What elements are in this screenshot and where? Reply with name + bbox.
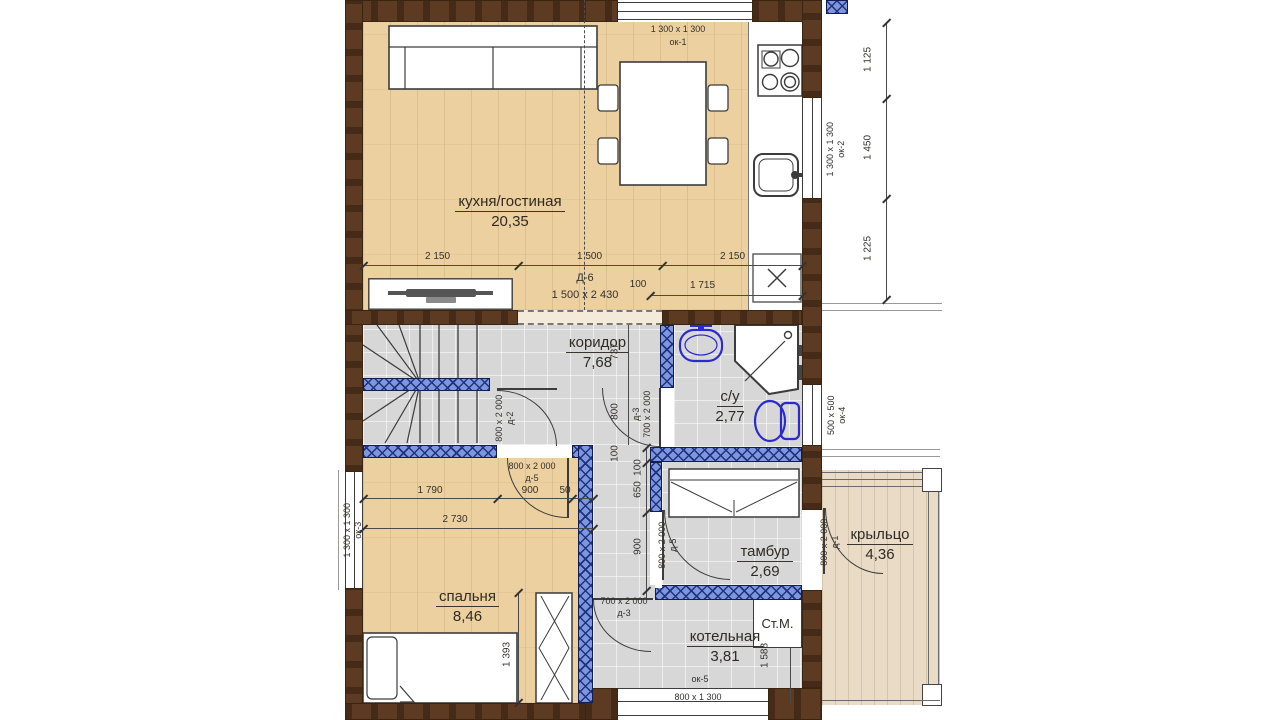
door-d3-boiler-code: д-3: [594, 608, 654, 619]
shower-icon: [733, 323, 805, 398]
window-ok5-code: ок-5: [670, 674, 730, 685]
dim-line-bedroom-2: [363, 528, 593, 529]
dim-bedroom-2730: 2 730: [405, 514, 505, 525]
door-code: д-2: [505, 383, 516, 453]
dim-bedroom-50: 50: [551, 485, 579, 496]
window-code: ок-4: [837, 383, 848, 447]
room-name: котельная: [687, 628, 764, 647]
room-label-corridor: коридор 7,68: [550, 334, 645, 371]
porch-post-bottom: [922, 684, 942, 706]
door-d3-boiler-size: 700 х 2 000: [574, 596, 674, 607]
wall-kitchen-bath: [662, 310, 802, 325]
door-code: д-1: [830, 507, 841, 577]
partition-corridor-bedroom: [363, 445, 497, 458]
door-code: д-3: [631, 379, 642, 449]
window-code: ок-2: [836, 109, 847, 189]
dim-top-right: 2 150: [685, 251, 780, 262]
opening-d6: [518, 310, 662, 325]
window-ok4: [802, 385, 822, 445]
room-label-porch: крыльцо 4,36: [835, 526, 925, 563]
dim-tambour-650: 650: [633, 460, 644, 520]
room-area: 2,69: [720, 563, 810, 580]
door-size: 700 х 2 000: [642, 379, 653, 449]
dim-bedroom-1393: 1 393: [502, 625, 513, 685]
porch-bottom-line: [822, 700, 940, 701]
dim-corridor-100: 100: [610, 424, 621, 484]
window-ok1: [618, 2, 752, 20]
dim-top-mid: 1 500: [542, 251, 637, 262]
window-ok1-mullion: [618, 11, 752, 12]
dim-bedroom-1790: 1 790: [380, 485, 480, 496]
room-label-kitchen: кухня/гостиная 20,35: [430, 193, 590, 230]
room-area: 4,36: [835, 546, 925, 563]
wall-kitchen-corridor-left: [345, 310, 518, 325]
room-name: крыльцо: [847, 526, 912, 545]
toilet-icon: [753, 396, 803, 446]
dim-line-1588: [790, 648, 791, 703]
room-name: спальня: [436, 588, 499, 607]
window-ok1-size: 1 300 х 1 300: [628, 24, 728, 35]
window-ok2-tag: 1 300 х 1 300 ок-2: [825, 109, 848, 189]
dim-line-tambour: [646, 447, 647, 600]
partition-stairs: [363, 378, 490, 391]
window-ok5-size: 800 х 1 300: [648, 692, 748, 703]
door-size: 800 х 2 000: [657, 510, 668, 580]
dining-table: [596, 58, 730, 190]
window-size: 500 х 500: [826, 383, 837, 447]
room-label-tambour: тамбур 2,69: [720, 543, 810, 580]
window-ok2-mullion: [812, 98, 813, 198]
dim-line-right: [886, 22, 887, 300]
dim-right-1225: 1 225: [863, 219, 874, 279]
wall-left-lower: [345, 588, 363, 720]
room-area: 20,35: [430, 213, 590, 230]
window-ok4-mullion: [812, 385, 813, 445]
door-d5-bedroom-size: 800 х 2 000: [482, 461, 582, 472]
porch-post-top: [922, 468, 942, 492]
room-area: 8,46: [410, 608, 525, 625]
room-name: тамбур: [737, 543, 792, 562]
door-d3-bath-tag: д-3 700 х 2 000: [631, 379, 654, 449]
door-d3-bath-gap: [660, 388, 674, 447]
room-porch-floor: [822, 470, 940, 705]
window-ok4-tag: 500 х 500 ок-4: [826, 383, 849, 447]
dim-1715: 1 715: [655, 280, 750, 291]
wall-right-4: [802, 590, 822, 688]
wall-bedroom-bottom: [345, 703, 600, 720]
room-label-bathroom: с/у 2,77: [700, 388, 760, 425]
bed: [362, 632, 518, 704]
dim-boiler-1588: 1 588: [760, 626, 771, 686]
partition-tambour-left: [650, 462, 662, 512]
dim-right-1450: 1 450: [863, 118, 874, 178]
floor-plan: Ст.М.: [0, 0, 1280, 720]
sill-line-2: [822, 456, 940, 457]
dim-line-1715: [650, 295, 802, 296]
partition-bath-left: [660, 325, 674, 388]
window-ok2: [802, 98, 822, 198]
door-d6-size: 1 500 х 2 430: [528, 289, 642, 301]
left-sill-line: [338, 470, 339, 590]
wardrobe: [535, 592, 573, 704]
porch-edge-right: [928, 470, 929, 705]
axis-line: [584, 0, 585, 310]
door-d1-tag: 800 х 2 000 д-1: [819, 507, 842, 577]
sofa: [388, 25, 598, 91]
partition-bedroom-right: [578, 445, 593, 703]
wall-right-1: [802, 0, 822, 98]
wall-left-upper: [345, 0, 363, 472]
window-size: 1 300 х 1 300: [342, 490, 353, 570]
bathroom-sink-icon: [678, 322, 726, 364]
door-size: 800 х 2 000: [819, 507, 830, 577]
door-d5-tambour-tag: 800 х 2 000 д-5: [657, 510, 680, 580]
window-size: 1 300 х 1 300: [825, 109, 836, 189]
room-area: 7,68: [550, 354, 645, 371]
door-code: д-5: [668, 510, 679, 580]
window-code: ок-3: [353, 490, 364, 570]
door-size: 800 х 2 000: [494, 383, 505, 453]
window-ok1-code: ок-1: [648, 37, 708, 48]
partition-boiler-top: [655, 585, 802, 600]
eaves-line-2: [822, 310, 942, 311]
door-d2-tag: 800 х 2 000 д-2: [494, 383, 517, 453]
dim-tambour-900: 900: [633, 517, 644, 577]
stove-icon: [757, 44, 803, 97]
dim-right-1125: 1 125: [863, 30, 874, 90]
partition-bath-bottom: [650, 447, 802, 462]
room-label-bedroom: спальня 8,46: [410, 588, 525, 625]
dim-line-bedroom-1: [363, 498, 593, 499]
dim-line-top: [363, 265, 802, 266]
door-d6-code: Д-6: [540, 272, 630, 284]
door-d5-bedroom-code: д-5: [502, 473, 562, 484]
dim-top-left: 2 150: [390, 251, 485, 262]
dim-corridor-737: 737: [610, 322, 621, 382]
sill-line-1: [822, 449, 940, 450]
tv-stand: [368, 278, 513, 310]
room-name: кухня/гостиная: [455, 193, 564, 212]
room-area: 2,77: [700, 408, 760, 425]
wall-boiler-bottom-right: [768, 688, 822, 720]
kitchen-sink-icon: [752, 152, 804, 198]
partition-top-right-corner: [826, 0, 848, 14]
wall-top-left: [345, 0, 618, 22]
room-name: с/у: [717, 388, 742, 407]
window-ok3-tag: 1 300 х 1 300 ок-3: [342, 490, 365, 570]
porch-edge-right-2: [938, 470, 939, 705]
wall-right-3: [802, 445, 822, 510]
